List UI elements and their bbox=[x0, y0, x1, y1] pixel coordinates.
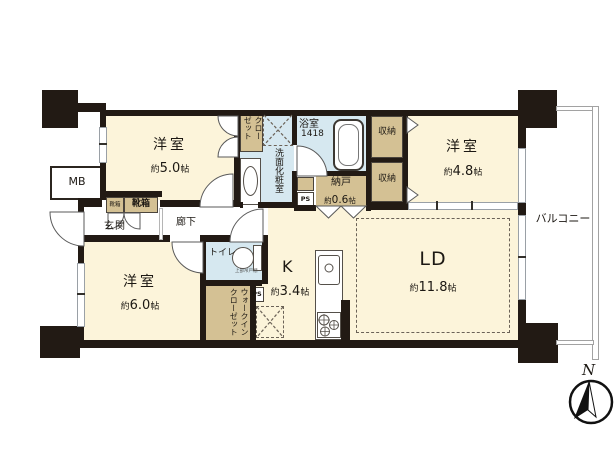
bedroom-main-size: 約6.0帖 bbox=[90, 295, 190, 313]
wall-right-b bbox=[518, 203, 526, 215]
balcony-label: バルコニー bbox=[530, 213, 596, 225]
meter-box-label: MB bbox=[50, 176, 104, 188]
bedroom-small-size: 約5.0帖 bbox=[120, 158, 220, 176]
storage-lower-label: 収納 bbox=[371, 175, 403, 185]
balcony-rail-right bbox=[592, 106, 599, 360]
wall-under-meter-box bbox=[84, 198, 102, 207]
window-living-east bbox=[518, 215, 526, 300]
wall-bottom bbox=[60, 340, 558, 348]
pillar-top-right bbox=[518, 90, 557, 128]
toilet-shelf-note: 上部吊戸棚 bbox=[235, 270, 258, 275]
wall-washroom-bottom-a bbox=[240, 202, 243, 208]
room-bedroom-main bbox=[84, 242, 200, 340]
living-dining-size: 約11.8帖 bbox=[398, 277, 468, 295]
compass-north-label: N bbox=[582, 362, 595, 379]
window-bedroom-small-west bbox=[99, 127, 107, 163]
pipe-space-1-label: PS bbox=[297, 196, 314, 203]
window-bedroom-main-west bbox=[77, 263, 85, 327]
wall-right-a bbox=[518, 128, 526, 148]
window-bedroom-right-east bbox=[518, 148, 526, 203]
door-shoe-right bbox=[124, 213, 140, 229]
balcony-rail-top bbox=[556, 106, 594, 111]
wall-storage-east bbox=[403, 116, 408, 210]
wall-toilet-east bbox=[262, 235, 268, 284]
wall-pillar-connector bbox=[75, 103, 106, 112]
living-dining-dashed-zone bbox=[356, 218, 510, 333]
wall-left-entry bbox=[78, 198, 84, 212]
toilet-label: トイレ bbox=[209, 249, 236, 259]
storage-upper-label: 収納 bbox=[371, 128, 403, 138]
bathroom-size: 1418 bbox=[301, 130, 324, 140]
wall-shoe-box bbox=[100, 191, 162, 197]
bathtub-inner bbox=[338, 124, 359, 166]
wall-bath-west-a bbox=[292, 116, 297, 145]
storage-room-name: 納戸 bbox=[316, 177, 366, 188]
pillar-bottom-right bbox=[518, 323, 558, 363]
bedroom-right-size: 約4.8帖 bbox=[413, 161, 513, 179]
kitchen-name: K bbox=[282, 258, 293, 276]
shoe-box-large-label: 靴箱 bbox=[124, 200, 158, 210]
kitchen-sink bbox=[318, 255, 340, 285]
wall-left-upper-a bbox=[100, 116, 106, 127]
walk-in-closet-label: ウォークインクローゼット bbox=[209, 288, 249, 342]
wall-left-mid bbox=[78, 242, 84, 263]
storage-room-size: 約0.6帖 bbox=[310, 189, 370, 207]
bedroom-right-name: 洋室 bbox=[413, 140, 513, 155]
window-bedroom-right-south bbox=[408, 202, 518, 210]
wall-bedroom-small-bottom-a bbox=[160, 200, 200, 207]
balcony-rail-bottom bbox=[556, 340, 594, 345]
toilet-tank bbox=[253, 245, 262, 271]
wall-kitchen-living-stub bbox=[341, 300, 350, 340]
washbasin-bowl bbox=[243, 166, 258, 196]
kitchen-size: 約3.4帖 bbox=[261, 281, 319, 299]
room-bedroom-right bbox=[408, 116, 518, 202]
pillar-top-left bbox=[42, 90, 78, 128]
entrance-label: 玄関 bbox=[104, 221, 126, 232]
bedroom-small-name: 洋室 bbox=[120, 138, 220, 153]
entrance-step-line bbox=[159, 208, 163, 240]
wall-storage-bottom bbox=[366, 202, 408, 210]
bedroom-main-name: 洋室 bbox=[90, 275, 190, 290]
wall-bath-storage-divider bbox=[294, 171, 366, 176]
kitchen-stove bbox=[317, 312, 341, 338]
door-toilet bbox=[230, 209, 263, 242]
hallway-label: 廊下 bbox=[176, 217, 196, 228]
wall-storage-divider bbox=[371, 158, 403, 162]
wall-toilet-west bbox=[200, 235, 206, 340]
wall-top bbox=[100, 110, 518, 116]
floorplan: MB 洋室 約5.0帖 クローゼット 洗面化粧室 浴室 1418 納戸 約0.6… bbox=[0, 0, 616, 450]
washroom-label: 洗面化粧室 bbox=[269, 148, 284, 204]
wall-bedroom-main-top-a bbox=[78, 235, 170, 242]
compass-icon bbox=[570, 381, 612, 423]
wall-right-c bbox=[518, 300, 526, 325]
washing-machine-space bbox=[263, 114, 293, 146]
closet-label: クローゼット bbox=[240, 116, 263, 146]
pipe-space-2-label: PS bbox=[250, 291, 264, 298]
wall-toilet-top bbox=[206, 235, 230, 242]
shoe-box-small-label: 靴箱 bbox=[106, 202, 124, 208]
living-dining-name: LD bbox=[405, 249, 461, 270]
refrigerator-space bbox=[256, 306, 284, 338]
